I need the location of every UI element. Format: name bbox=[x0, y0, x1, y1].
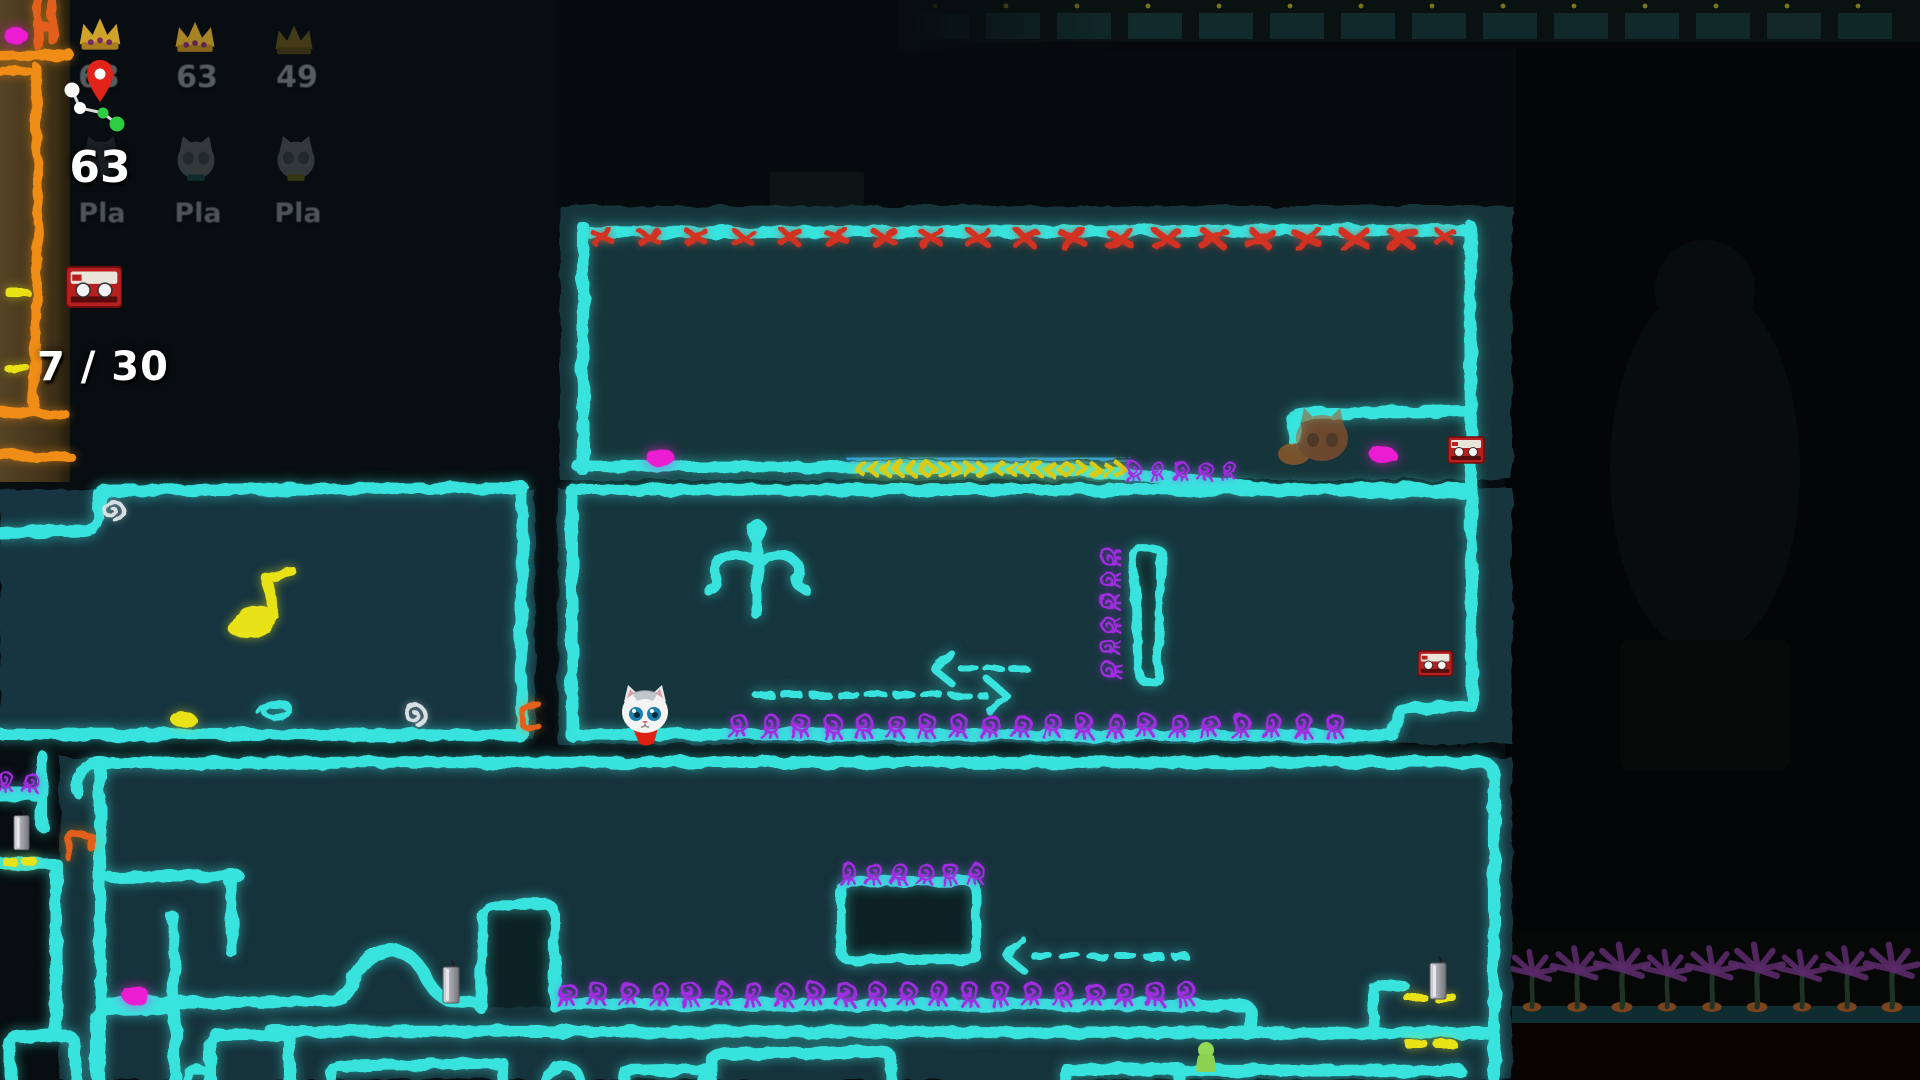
chimney-silhouette bbox=[770, 172, 864, 210]
skyline-block bbox=[1625, 13, 1679, 39]
skyline-block bbox=[1341, 13, 1395, 39]
skyline-light bbox=[1856, 4, 1861, 9]
magenta-dot bbox=[646, 448, 674, 466]
leaderboard-name: Pla bbox=[158, 198, 238, 229]
player-avatar bbox=[172, 134, 220, 182]
spiral-creature-icon bbox=[0, 773, 14, 792]
yellow-dash bbox=[1404, 994, 1428, 1002]
candle-sprite bbox=[443, 961, 459, 1003]
skyline-block bbox=[1483, 13, 1537, 39]
cassette-pickup bbox=[1448, 437, 1484, 463]
yellow-dash bbox=[2, 858, 18, 866]
skyline-block bbox=[1270, 13, 1324, 39]
player-avatar bbox=[272, 134, 320, 182]
game-stage: 63 63 49 63 Pla Pla Pla bbox=[0, 0, 1920, 1080]
yellow-dash bbox=[1433, 1040, 1457, 1048]
skyline-light bbox=[1430, 4, 1435, 9]
skyline-block bbox=[1554, 13, 1608, 39]
leaderboard-score: 49 bbox=[262, 60, 332, 95]
leaderboard-name: Pla bbox=[62, 198, 142, 229]
crown-icon bbox=[172, 18, 218, 54]
tape-counter: 7 / 30 bbox=[28, 344, 178, 390]
magenta-dot bbox=[122, 987, 150, 1005]
magenta-dot bbox=[1370, 446, 1396, 464]
skyline-light bbox=[1572, 4, 1577, 9]
leaderboard-score: 63 bbox=[162, 60, 232, 95]
crown-icon bbox=[76, 14, 124, 52]
player-score: 63 bbox=[62, 142, 138, 193]
skyline-block bbox=[1767, 13, 1821, 39]
skyline-block bbox=[1838, 13, 1892, 39]
leaderboard-name: Pla bbox=[258, 198, 338, 229]
yellow-dash bbox=[22, 858, 38, 866]
skyline-block bbox=[1199, 13, 1253, 39]
yellow-dash bbox=[1404, 1040, 1428, 1048]
skyline-light bbox=[1288, 4, 1293, 9]
crown-icon bbox=[272, 22, 316, 56]
skyline-light bbox=[1359, 4, 1364, 9]
skyline-light bbox=[1785, 4, 1790, 9]
candle-sprite bbox=[14, 810, 29, 850]
skyline-block bbox=[1696, 13, 1750, 39]
yellow-dot bbox=[170, 711, 196, 727]
skyline-light bbox=[1501, 4, 1506, 9]
skyline-light bbox=[1146, 4, 1151, 9]
skyline-block bbox=[1412, 13, 1466, 39]
skyline-light bbox=[1714, 4, 1719, 9]
spiral-creature-icon bbox=[23, 773, 38, 792]
cassette-pickup bbox=[1418, 651, 1452, 676]
candle-sprite bbox=[1430, 957, 1446, 999]
skyline-light bbox=[1643, 4, 1648, 9]
map-pin-route-icon bbox=[56, 56, 138, 144]
green-figure bbox=[1196, 1042, 1216, 1072]
cassette-tape-icon bbox=[66, 266, 122, 308]
hud: 63 63 49 63 Pla Pla Pla bbox=[0, 0, 420, 420]
skyline-fade bbox=[898, 0, 1138, 50]
skyline-light bbox=[1217, 4, 1222, 9]
